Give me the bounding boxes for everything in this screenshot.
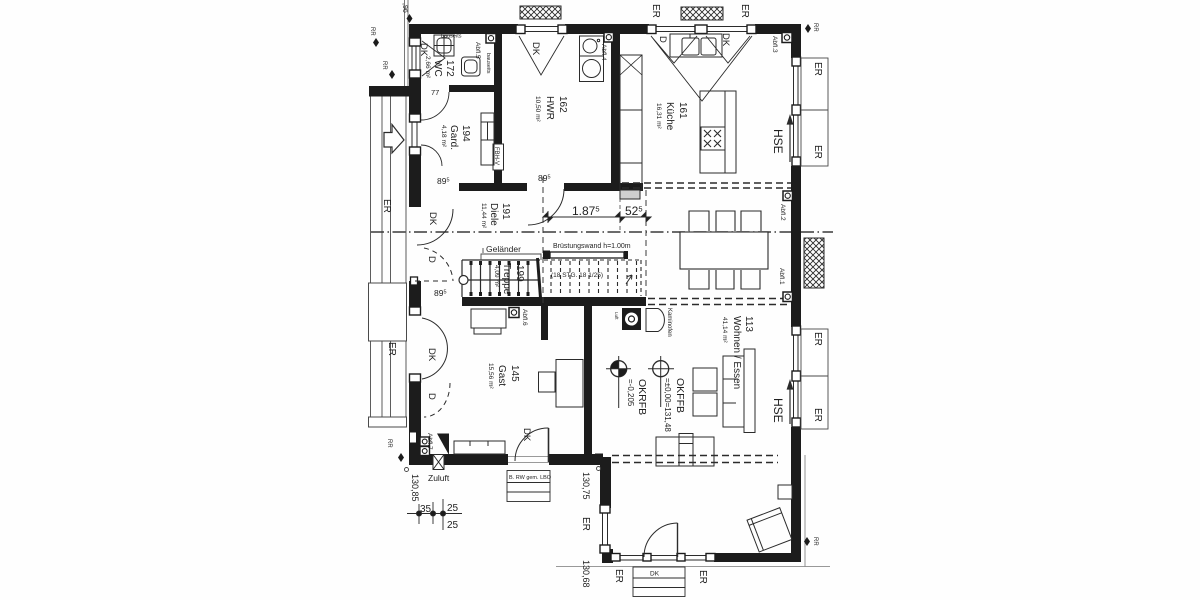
svg-text:HSE: HSE [771,398,785,423]
svg-text:DK: DK [521,428,532,442]
svg-text:DK: DK [426,348,437,362]
svg-text:172: 172 [444,60,455,77]
svg-text:Gast: Gast [496,365,507,386]
svg-text:130,75: 130,75 [581,472,591,500]
svg-text:Abfl.2: Abfl.2 [779,204,786,221]
svg-text:Küche: Küche [664,102,675,131]
svg-text:77: 77 [431,88,439,97]
svg-text:RR: RR [812,537,818,546]
svg-text:194: 194 [460,125,471,142]
svg-text:D: D [426,256,437,263]
svg-text:OKFFB: OKFFB [674,378,686,413]
svg-text:Kaminofen: Kaminofen [666,308,672,337]
svg-text:Luft: Luft [614,312,619,320]
svg-text:ER: ER [650,4,661,18]
svg-text:RR: RR [812,23,818,32]
svg-text:ER: ER [580,517,591,531]
svg-text:4,18 m²: 4,18 m² [440,125,447,148]
svg-text:Brüstungswand h=1.00m: Brüstungswand h=1.00m [553,243,631,250]
svg-text:199: 199 [514,265,525,282]
svg-text:ER: ER [381,199,392,213]
svg-text:16,31 m²: 16,31 m² [655,103,662,129]
svg-text:ER: ER [812,145,823,159]
svg-text:RR: RR [386,439,392,448]
svg-text:Gard.: Gard. [448,125,459,150]
svg-text:161: 161 [677,102,688,119]
svg-text:25: 25 [447,503,459,514]
svg-text:Zuluft: Zuluft [428,473,450,483]
svg-text:Abfl.4: Abfl.4 [600,44,607,61]
svg-text:(18 STG. 18 1/25): (18 STG. 18 1/25) [551,272,603,279]
svg-text:DK: DK [427,212,438,226]
svg-text:Abfl.5: Abfl.5 [474,42,481,59]
svg-text:,96: ,96 [401,3,408,13]
svg-text:FBH-V: FBH-V [493,147,499,165]
svg-text:162: 162 [557,96,568,113]
svg-text:Abfl.3: Abfl.3 [771,36,778,53]
svg-text:D: D [426,393,437,400]
svg-text:=±0,00=131,48: =±0,00=131,48 [663,378,672,432]
svg-text:DK: DK [720,33,731,47]
svg-text:OKRFB: OKRFB [636,379,648,415]
svg-text:35: 35 [420,504,432,515]
svg-text:Abfl.1: Abfl.1 [778,268,785,285]
svg-text:145: 145 [509,365,520,382]
svg-text:25: 25 [447,520,459,531]
svg-text:HWR: HWR [544,96,555,120]
svg-text:41,14 m²: 41,14 m² [721,317,728,343]
svg-text:113: 113 [743,316,754,332]
svg-text:Treppe: Treppe [501,263,512,295]
svg-text:ER: ER [812,62,823,76]
svg-text:ER: ER [812,408,823,422]
svg-text:ER: ER [812,332,823,346]
svg-text:Abfl.6: Abfl.6 [521,309,528,326]
svg-text:11,44 m²: 11,44 m² [480,203,487,229]
svg-text:HSE: HSE [771,129,785,154]
svg-text:ER: ER [739,4,750,18]
svg-text:bauseits: bauseits [485,53,491,74]
svg-text:RR: RR [381,61,387,70]
svg-text:ER: ER [697,570,708,584]
svg-text:DK: DK [530,42,541,56]
svg-text:DK: DK [418,43,429,57]
svg-text:2,66 m²: 2,66 m² [424,56,431,79]
svg-text:4,09 m²: 4,09 m² [493,265,500,288]
svg-text:ER: ER [386,342,397,356]
svg-text:Abfl.7: Abfl.7 [426,433,433,450]
svg-text:WC: WC [432,60,443,77]
svg-text:10,50 m²: 10,50 m² [534,96,541,122]
svg-text:130,68: 130,68 [581,560,591,588]
svg-text:Diele: Diele [488,203,499,226]
svg-text:Geländer: Geländer [486,244,521,254]
svg-text:RR: RR [369,27,375,36]
svg-text:15,56 m²: 15,56 m² [487,363,494,389]
svg-text:bauseits: bauseits [441,34,462,40]
svg-text:=-0,205: =-0,205 [626,379,635,407]
svg-text:DK: DK [650,571,660,578]
svg-text:B. RW gem. LBO: B. RW gem. LBO [509,475,552,481]
svg-text:130,85: 130,85 [410,474,420,502]
svg-text:ER: ER [613,569,624,583]
svg-text:191: 191 [500,203,511,220]
svg-text:Wohnen / Essen: Wohnen / Essen [731,316,742,389]
svg-text:D: D [657,36,668,43]
